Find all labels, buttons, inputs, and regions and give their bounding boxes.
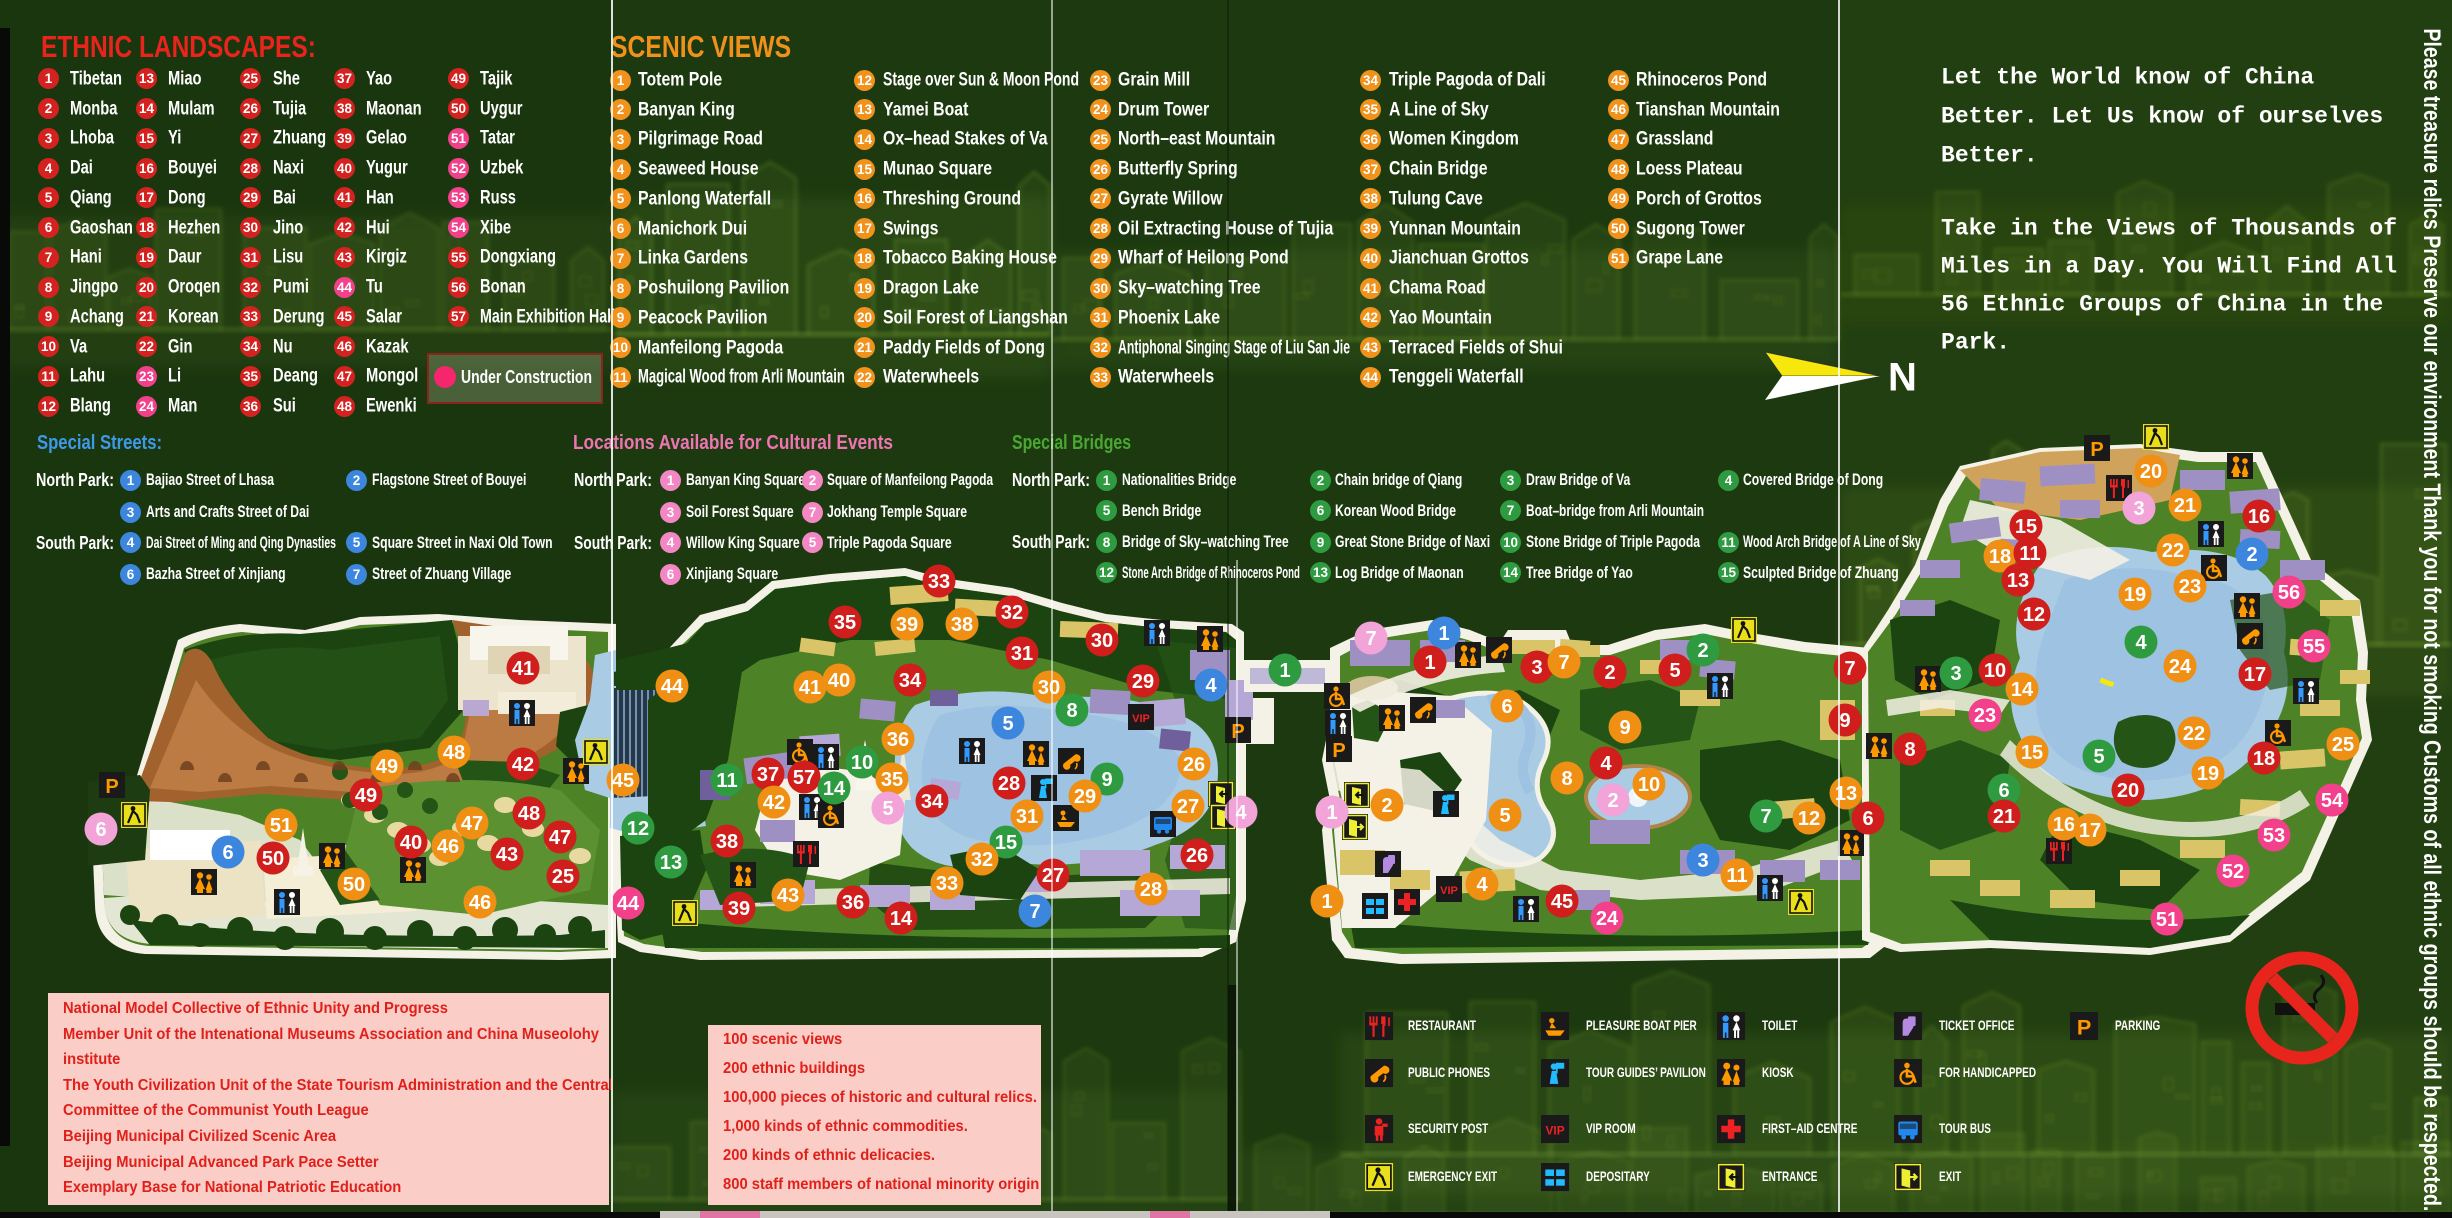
svg-text:31: 31 [1016, 806, 1038, 828]
svg-text:47: 47 [461, 813, 483, 835]
svg-text:40: 40 [828, 670, 850, 692]
svg-text:54: 54 [2321, 790, 2344, 812]
svg-text:15: 15 [995, 832, 1017, 854]
svg-text:6: 6 [222, 842, 233, 864]
svg-text:7: 7 [1760, 806, 1771, 828]
svg-text:46: 46 [469, 892, 491, 914]
svg-text:41: 41 [512, 658, 534, 680]
svg-text:11: 11 [1726, 865, 1747, 887]
svg-text:49: 49 [376, 756, 398, 778]
svg-text:1: 1 [1279, 660, 1290, 682]
svg-text:28: 28 [998, 773, 1020, 795]
svg-text:50: 50 [262, 848, 284, 870]
svg-text:3: 3 [1950, 663, 1961, 685]
svg-text:22: 22 [2183, 723, 2205, 745]
svg-text:1: 1 [1326, 802, 1337, 824]
svg-text:28: 28 [1140, 879, 1162, 901]
svg-text:40: 40 [400, 832, 422, 854]
svg-text:29: 29 [1132, 671, 1154, 693]
svg-text:17: 17 [2079, 820, 2101, 842]
svg-text:15: 15 [2015, 516, 2037, 538]
svg-text:9: 9 [1101, 769, 1112, 791]
svg-text:1: 1 [1424, 652, 1435, 674]
svg-text:52: 52 [2222, 861, 2244, 883]
svg-text:13: 13 [660, 852, 682, 874]
svg-text:42: 42 [763, 792, 785, 814]
svg-text:32: 32 [1001, 602, 1023, 624]
svg-text:32: 32 [971, 849, 993, 871]
svg-text:26: 26 [1183, 754, 1205, 776]
svg-text:22: 22 [2162, 540, 2184, 562]
svg-text:18: 18 [1989, 546, 2011, 568]
svg-text:12: 12 [627, 818, 649, 840]
svg-text:7: 7 [1029, 901, 1040, 923]
svg-text:9: 9 [1839, 710, 1850, 732]
svg-text:12: 12 [2023, 604, 2045, 626]
svg-text:56: 56 [2278, 582, 2300, 604]
svg-text:25: 25 [552, 866, 574, 888]
svg-text:3: 3 [2133, 498, 2144, 520]
svg-text:10: 10 [851, 752, 873, 774]
svg-text:8: 8 [1904, 739, 1915, 761]
svg-text:51: 51 [270, 815, 292, 837]
svg-text:17: 17 [2244, 664, 2266, 686]
svg-text:51: 51 [2156, 909, 2178, 931]
svg-text:33: 33 [936, 873, 958, 895]
svg-text:44: 44 [617, 893, 640, 915]
svg-text:43: 43 [777, 885, 799, 907]
svg-text:46: 46 [437, 836, 459, 858]
svg-text:30: 30 [1038, 677, 1060, 699]
svg-text:57: 57 [793, 767, 815, 789]
svg-text:2: 2 [2246, 544, 2257, 566]
svg-text:6: 6 [1501, 696, 1512, 718]
svg-text:4: 4 [1600, 753, 1612, 775]
svg-text:8: 8 [1066, 700, 1077, 722]
svg-text:19: 19 [2197, 763, 2219, 785]
svg-text:7: 7 [1558, 652, 1569, 674]
svg-text:27: 27 [1177, 796, 1199, 818]
svg-text:11: 11 [716, 770, 737, 792]
svg-text:38: 38 [716, 831, 738, 853]
svg-text:48: 48 [443, 742, 465, 764]
svg-text:29: 29 [1074, 786, 1096, 808]
svg-text:25: 25 [2332, 734, 2354, 756]
svg-text:6: 6 [1998, 780, 2009, 802]
svg-text:10: 10 [1984, 660, 2006, 682]
svg-text:15: 15 [2021, 742, 2043, 764]
svg-text:43: 43 [496, 844, 518, 866]
svg-text:16: 16 [2053, 814, 2075, 836]
svg-text:6: 6 [95, 819, 106, 841]
svg-text:42: 42 [512, 754, 534, 776]
svg-text:21: 21 [2174, 495, 2196, 517]
svg-text:6: 6 [1862, 808, 1873, 830]
svg-text:35: 35 [881, 769, 903, 791]
svg-text:49: 49 [355, 785, 377, 807]
svg-text:3: 3 [1697, 850, 1708, 872]
svg-text:10: 10 [1638, 774, 1660, 796]
svg-text:50: 50 [343, 874, 365, 896]
svg-text:14: 14 [823, 778, 846, 800]
svg-text:5: 5 [1499, 805, 1510, 827]
svg-text:12: 12 [1798, 808, 1820, 830]
svg-text:35: 35 [834, 612, 856, 634]
svg-text:5: 5 [1002, 713, 1013, 735]
svg-text:48: 48 [518, 803, 540, 825]
svg-text:2: 2 [1381, 795, 1392, 817]
svg-text:20: 20 [2117, 780, 2139, 802]
svg-text:4: 4 [2135, 632, 2147, 654]
svg-text:27: 27 [1042, 865, 1064, 887]
svg-text:2: 2 [1697, 640, 1708, 662]
svg-text:11: 11 [2019, 543, 2040, 565]
svg-text:7: 7 [1844, 658, 1855, 680]
svg-text:36: 36 [887, 729, 909, 751]
svg-text:19: 19 [2124, 584, 2146, 606]
svg-text:18: 18 [2253, 748, 2275, 770]
svg-text:7: 7 [1365, 628, 1376, 650]
svg-text:39: 39 [896, 614, 918, 636]
svg-text:23: 23 [2179, 576, 2201, 598]
svg-text:55: 55 [2303, 636, 2325, 658]
svg-text:38: 38 [951, 614, 973, 636]
svg-text:4: 4 [1205, 675, 1217, 697]
svg-text:36: 36 [842, 892, 864, 914]
svg-text:47: 47 [549, 827, 571, 849]
svg-text:1: 1 [1321, 891, 1332, 913]
svg-text:37: 37 [757, 764, 779, 786]
svg-text:41: 41 [799, 677, 821, 699]
svg-text:2: 2 [1607, 790, 1618, 812]
svg-text:5: 5 [882, 798, 893, 820]
svg-text:4: 4 [1476, 874, 1488, 896]
svg-text:39: 39 [728, 898, 750, 920]
svg-text:21: 21 [1993, 806, 2015, 828]
svg-text:31: 31 [1011, 643, 1033, 665]
svg-text:14: 14 [890, 908, 913, 930]
svg-text:34: 34 [921, 791, 944, 813]
svg-text:14: 14 [2011, 679, 2034, 701]
svg-text:30: 30 [1091, 630, 1113, 652]
svg-text:23: 23 [1974, 705, 1996, 727]
svg-text:33: 33 [928, 571, 950, 593]
svg-text:26: 26 [1186, 845, 1208, 867]
svg-text:8: 8 [1561, 768, 1572, 790]
svg-text:2: 2 [1604, 662, 1615, 684]
svg-text:24: 24 [2169, 656, 2192, 678]
svg-text:53: 53 [2263, 825, 2285, 847]
svg-text:34: 34 [899, 670, 922, 692]
svg-text:13: 13 [2007, 570, 2029, 592]
svg-text:45: 45 [1551, 891, 1573, 913]
svg-text:20: 20 [2140, 461, 2162, 483]
svg-text:5: 5 [2093, 746, 2104, 768]
svg-text:9: 9 [1619, 717, 1630, 739]
svg-text:44: 44 [661, 676, 684, 698]
svg-text:3: 3 [1531, 657, 1542, 679]
svg-text:1: 1 [1438, 623, 1449, 645]
svg-text:24: 24 [1596, 908, 1619, 930]
svg-text:16: 16 [2248, 506, 2270, 528]
svg-text:5: 5 [1669, 660, 1680, 682]
svg-text:45: 45 [612, 770, 634, 792]
